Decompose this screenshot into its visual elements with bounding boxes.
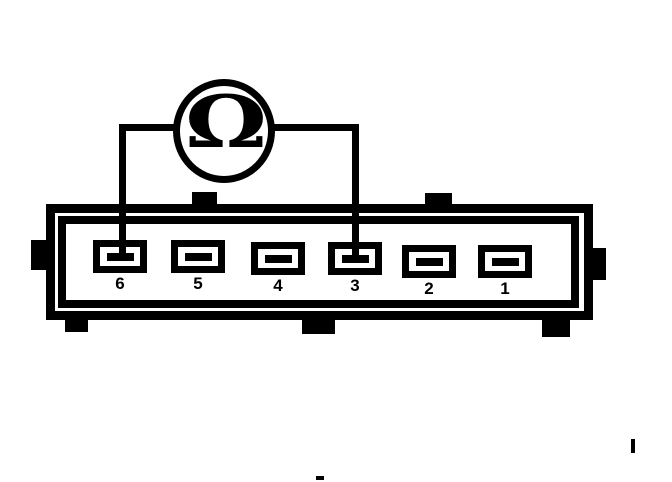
connector-side-tab-right xyxy=(590,248,606,280)
terminal-6-slot xyxy=(107,253,134,261)
terminal-1 xyxy=(478,245,532,278)
terminal-5-slot xyxy=(185,253,212,261)
terminal-5 xyxy=(171,240,225,273)
terminal-1-slot xyxy=(492,258,519,266)
terminal-3-slot xyxy=(342,255,369,263)
connector-top-tab-right xyxy=(425,193,452,207)
terminal-4 xyxy=(251,242,305,275)
terminal-4-slot xyxy=(265,255,292,263)
terminal-2-slot xyxy=(416,258,443,266)
terminal-6-label: 6 xyxy=(93,275,147,293)
connector-bottom-tab-left xyxy=(65,314,88,332)
terminal-3 xyxy=(328,242,382,275)
connector-top-tab-left xyxy=(192,192,217,206)
terminal-2 xyxy=(402,245,456,278)
connector-side-tab-left xyxy=(31,240,47,270)
ohmmeter-symbol-icon: Ω xyxy=(134,86,318,158)
terminal-5-label: 5 xyxy=(171,275,225,293)
diagram-canvas: Ω 6 5 4 3 2 1 xyxy=(0,0,672,482)
terminal-1-label: 1 xyxy=(478,280,532,298)
connector-bottom-tab-middle xyxy=(302,316,335,334)
terminal-6 xyxy=(93,240,147,273)
terminal-4-label: 4 xyxy=(251,277,305,295)
scan-artifact-tick xyxy=(631,439,635,453)
scan-artifact-dash xyxy=(316,476,324,480)
terminal-3-label: 3 xyxy=(328,277,382,295)
terminal-2-label: 2 xyxy=(402,280,456,298)
connector-bottom-tab-right xyxy=(542,318,570,337)
